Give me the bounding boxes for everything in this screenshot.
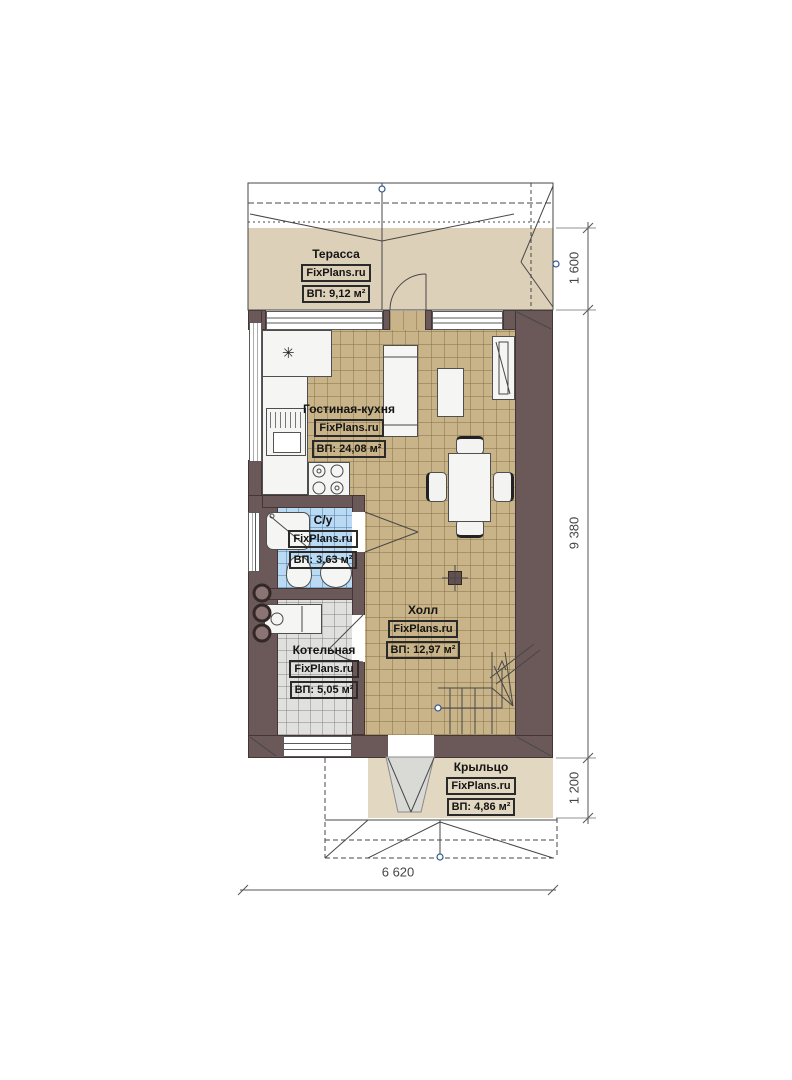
- brand-watermark: FixPlans.ru: [446, 777, 515, 795]
- dimension-porch-depth: 1 200: [567, 772, 582, 805]
- room-label-bathroom: С/у FixPlans.ru ВП: 3,63 м²: [288, 513, 358, 569]
- room-name: Котельная: [293, 643, 356, 657]
- room-area: ВП: 4,86 м²: [447, 798, 516, 816]
- room-label-hall: Холл FixPlans.ru ВП: 12,97 м²: [385, 603, 461, 659]
- brand-watermark: FixPlans.ru: [289, 660, 358, 678]
- room-label-boiler: Котельная FixPlans.ru ВП: 5,05 м²: [286, 643, 362, 699]
- brand-watermark: FixPlans.ru: [314, 419, 383, 437]
- room-label-terrace: Терасса FixPlans.ru ВП: 9,12 м²: [296, 247, 376, 303]
- room-area: ВП: 24,08 м²: [312, 440, 387, 458]
- dimension-house-width: 6 620: [382, 865, 415, 880]
- room-name: Гостиная-кухня: [303, 402, 395, 416]
- room-name: Терасса: [312, 247, 360, 261]
- room-area: ВП: 3,63 м²: [289, 551, 358, 569]
- dimension-terrace-depth: 1 600: [567, 252, 582, 285]
- floor-plan: ✳: [0, 0, 792, 1080]
- room-label-living-kitchen: Гостиная-кухня FixPlans.ru ВП: 24,08 м²: [299, 402, 399, 458]
- brand-watermark: FixPlans.ru: [388, 620, 457, 638]
- dimension-house-length: 9 380: [567, 517, 582, 550]
- porch-roof-lines: [325, 758, 557, 860]
- room-name: С/у: [314, 513, 333, 527]
- plan-linework: [0, 0, 792, 1080]
- brand-watermark: FixPlans.ru: [301, 264, 370, 282]
- room-name: Холл: [408, 603, 438, 617]
- room-label-porch: Крыльцо FixPlans.ru ВП: 4,86 м²: [442, 760, 520, 816]
- entry-steps: [386, 757, 434, 812]
- room-area: ВП: 12,97 м²: [386, 641, 461, 659]
- terrace-roof-lines: [248, 183, 559, 310]
- room-name: Крыльцо: [454, 760, 509, 774]
- room-area: ВП: 5,05 м²: [290, 681, 359, 699]
- boiler-equipment: [254, 585, 270, 641]
- brand-watermark: FixPlans.ru: [288, 530, 357, 548]
- room-area: ВП: 9,12 м²: [302, 285, 371, 303]
